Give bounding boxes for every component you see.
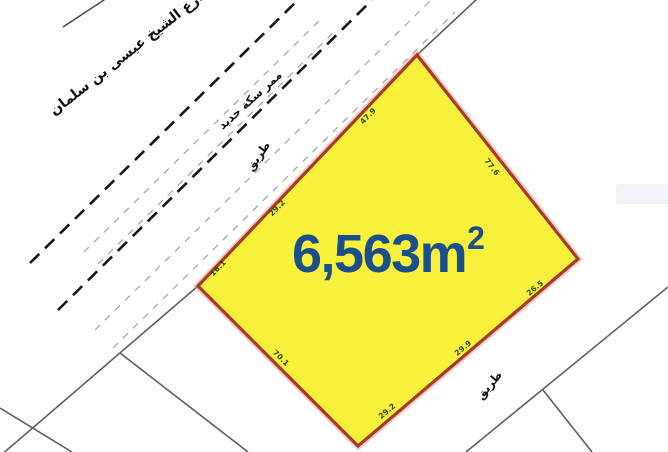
area-label: 6,563m2 bbox=[292, 223, 484, 285]
watermark-pill bbox=[616, 184, 668, 204]
boundary-line-left bbox=[0, 286, 198, 452]
boundary-line-bottom-left-branch bbox=[120, 353, 248, 452]
area-superscript: 2 bbox=[467, 220, 485, 256]
boundary-line-top-right bbox=[417, 0, 478, 55]
area-value: 6,563m bbox=[292, 224, 466, 284]
plot-map: شارع الشيخ عيسى بن سلمان ممر سكة حديد طر… bbox=[0, 0, 668, 452]
boundary-line-bottom-right-branch bbox=[543, 390, 592, 452]
boundary-line-bottom-corner bbox=[0, 408, 72, 452]
corner-boundary-line bbox=[63, 0, 107, 27]
